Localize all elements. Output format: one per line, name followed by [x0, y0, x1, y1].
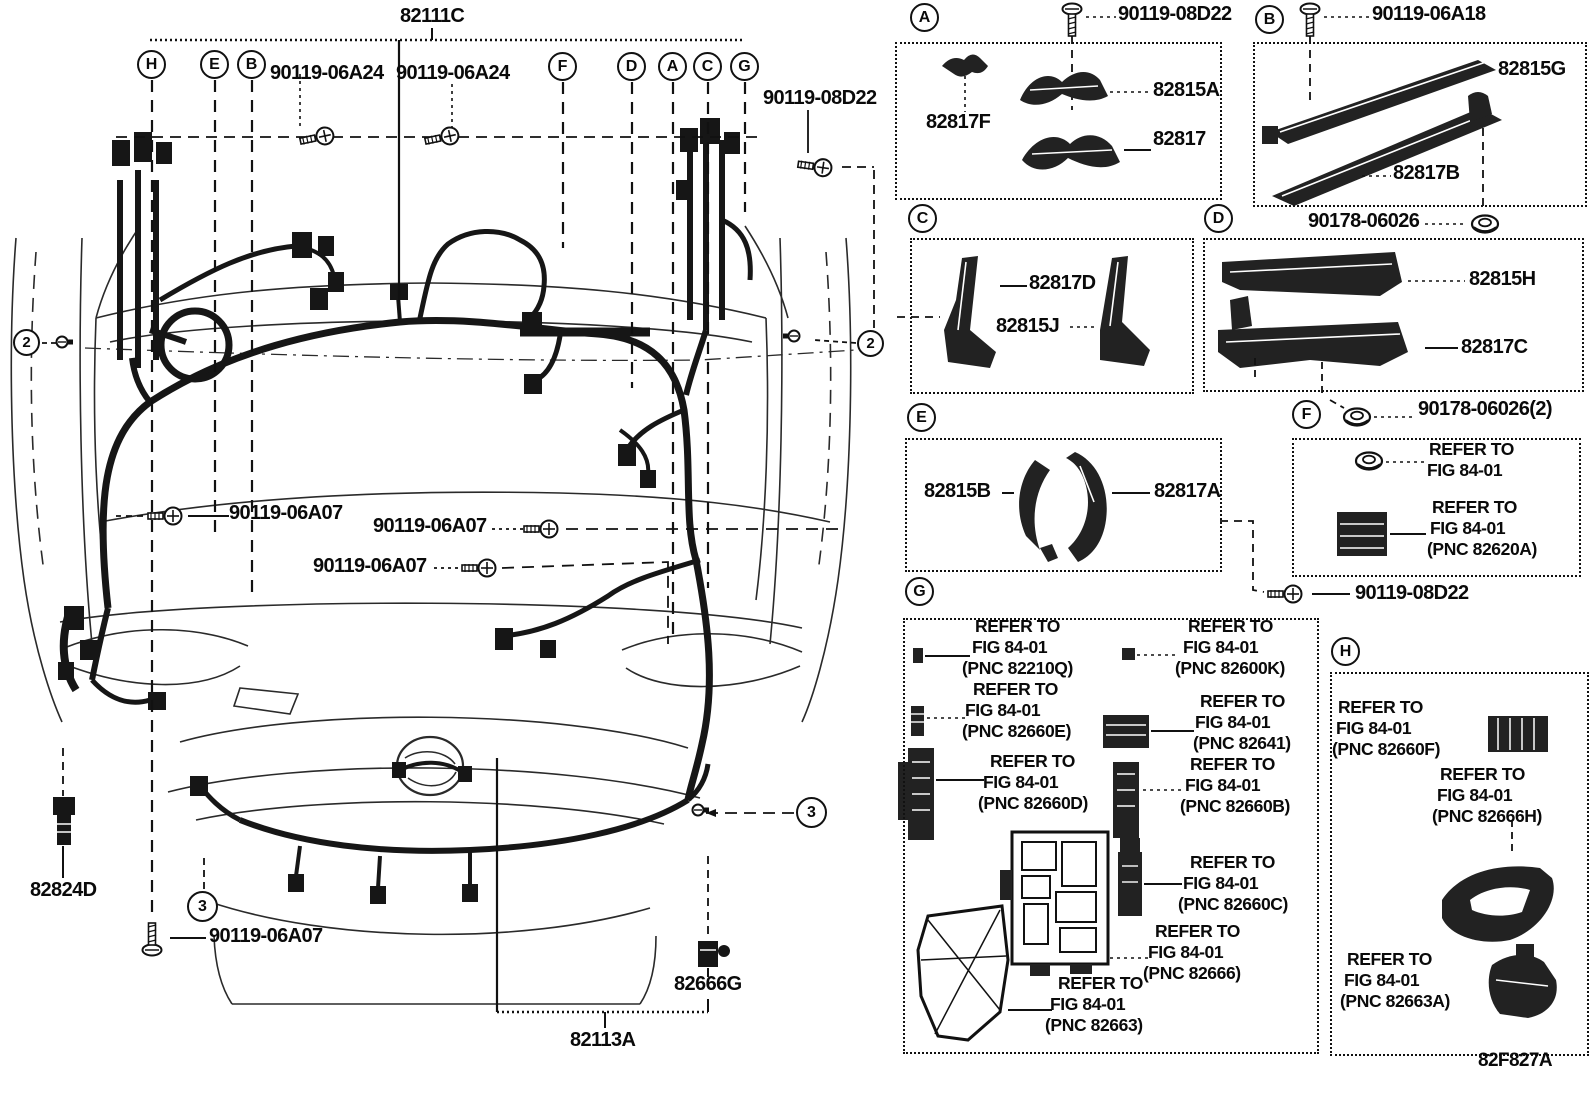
callout-h: H	[137, 50, 166, 79]
label-82815g: 82815G	[1498, 59, 1566, 80]
label-h2-l3: (PNC 82663A)	[1340, 992, 1450, 1010]
label-g2-l1: REFER TO	[990, 752, 1075, 770]
label-82817a: 82817A	[1154, 481, 1220, 502]
label-g6-l2: FIG 84-01	[1183, 874, 1258, 892]
label-f-note0-l1: REFER TO	[1429, 440, 1514, 458]
label-90119-06a07-3: 90119-06A07	[313, 556, 427, 577]
callout-g: G	[730, 52, 759, 81]
label-82817d: 82817D	[1029, 273, 1095, 294]
label-82817f: 82817F	[926, 112, 990, 133]
label-g8-l2: FIG 84-01	[1050, 995, 1125, 1013]
label-90178-06026: 90178-06026	[1308, 211, 1419, 232]
label-h1-l3: (PNC 82666H)	[1432, 807, 1542, 825]
label-g4-l2: FIG 84-01	[1195, 713, 1270, 731]
label-h0-l1: REFER TO	[1338, 698, 1423, 716]
label-g5-l2: FIG 84-01	[1185, 776, 1260, 794]
label-g0-l3: (PNC 82210Q)	[962, 659, 1073, 677]
callout-e: E	[200, 50, 229, 79]
label-g3-l3: (PNC 82600K)	[1175, 659, 1285, 677]
label-g4-l1: REFER TO	[1200, 692, 1285, 710]
label-a-screw: 90119-08D22	[1118, 4, 1232, 25]
label-82815a: 82815A	[1153, 80, 1219, 101]
panel-g-letter: G	[905, 577, 934, 606]
label-g4-l3: (PNC 82641)	[1193, 734, 1291, 752]
label-f-screw: 90119-08D22	[1355, 583, 1469, 604]
label-g1-l1: REFER TO	[973, 680, 1058, 698]
panel-h-letter: H	[1331, 637, 1360, 666]
label-h0-l2: FIG 84-01	[1336, 719, 1411, 737]
panel-e-box	[905, 438, 1222, 572]
label-g2-l2: FIG 84-01	[983, 773, 1058, 791]
panel-e-letter: E	[907, 403, 936, 432]
label-90119-06a07-2: 90119-06A07	[373, 516, 487, 537]
label-90119-08d22-main: 90119-08D22	[763, 88, 877, 109]
label-82824d: 82824D	[30, 880, 96, 901]
label-g8-l3: (PNC 82663)	[1045, 1016, 1143, 1034]
panel-d-letter: D	[1204, 204, 1233, 233]
label-f-note1-l2: FIG 84-01	[1430, 519, 1505, 537]
label-g3-l1: REFER TO	[1188, 617, 1273, 635]
ref-circle-2-left: 2	[13, 329, 40, 356]
label-h1-l2: FIG 84-01	[1437, 786, 1512, 804]
label-f-note0-l2: FIG 84-01	[1427, 461, 1502, 479]
callout-d: D	[617, 52, 646, 81]
label-82817: 82817	[1153, 129, 1206, 150]
label-82113a: 82113A	[570, 1030, 635, 1051]
label-g6-l3: (PNC 82660C)	[1178, 895, 1288, 913]
wiring-parts-diagram: H E B F D A C G 2 2 3 3 A B C D E F G H …	[0, 0, 1592, 1099]
callout-c: C	[693, 52, 722, 81]
panel-c-letter: C	[908, 204, 937, 233]
label-90178-06026-2: 90178-06026(2)	[1418, 399, 1552, 420]
label-h2-l2: FIG 84-01	[1344, 971, 1419, 989]
callout-a: A	[658, 52, 687, 81]
label-90119-06a07-4: 90119-06A07	[209, 926, 323, 947]
part-82824d-icon	[53, 797, 75, 845]
label-g2-l3: (PNC 82660D)	[978, 794, 1088, 812]
label-90119-06a24-1: 90119-06A24	[270, 63, 384, 84]
label-g1-l2: FIG 84-01	[965, 701, 1040, 719]
label-g5-l3: (PNC 82660B)	[1180, 797, 1290, 815]
label-82666g: 82666G	[674, 974, 742, 995]
ref-circle-3-left: 3	[187, 891, 218, 922]
label-h1-l1: REFER TO	[1440, 765, 1525, 783]
callout-f: F	[548, 52, 577, 81]
label-g3-l2: FIG 84-01	[1183, 638, 1258, 656]
label-g0-l2: FIG 84-01	[972, 638, 1047, 656]
label-g6-l1: REFER TO	[1190, 853, 1275, 871]
label-g8-l1: REFER TO	[1058, 974, 1143, 992]
label-g7-l3: (PNC 82666)	[1143, 964, 1241, 982]
label-82815b: 82815B	[924, 481, 990, 502]
label-82111c: 82111C	[400, 6, 464, 27]
figure-code: 82F827A	[1478, 1051, 1552, 1071]
label-h0-l3: (PNC 82660F)	[1332, 740, 1440, 758]
label-f-note1-l3: (PNC 82620A)	[1427, 540, 1537, 558]
label-82817c: 82817C	[1461, 337, 1527, 358]
ref-circle-3-right: 3	[796, 797, 827, 828]
label-g0-l1: REFER TO	[975, 617, 1060, 635]
panel-f-letter: F	[1292, 400, 1321, 429]
label-90119-06a24-2: 90119-06A24	[396, 63, 510, 84]
panel-b-letter: B	[1255, 5, 1284, 34]
label-g1-l3: (PNC 82660E)	[962, 722, 1071, 740]
label-g7-l1: REFER TO	[1155, 922, 1240, 940]
f-row-graphics	[1344, 409, 1416, 426]
label-g5-l1: REFER TO	[1190, 755, 1275, 773]
label-g7-l2: FIG 84-01	[1148, 943, 1223, 961]
panel-a-letter: A	[910, 3, 939, 32]
label-b-screw: 90119-06A18	[1372, 4, 1486, 25]
label-h2-l1: REFER TO	[1347, 950, 1432, 968]
label-82815h: 82815H	[1469, 269, 1535, 290]
panel-d-box	[1203, 238, 1584, 392]
ref-circle-2-right: 2	[857, 330, 884, 357]
label-82817b: 82817B	[1393, 163, 1459, 184]
callout-b: B	[237, 50, 266, 79]
part-82666g-icon	[698, 941, 730, 967]
label-82815j: 82815J	[996, 316, 1059, 337]
label-f-note1-l1: REFER TO	[1432, 498, 1517, 516]
label-90119-06a07-1: 90119-06A07	[229, 503, 343, 524]
